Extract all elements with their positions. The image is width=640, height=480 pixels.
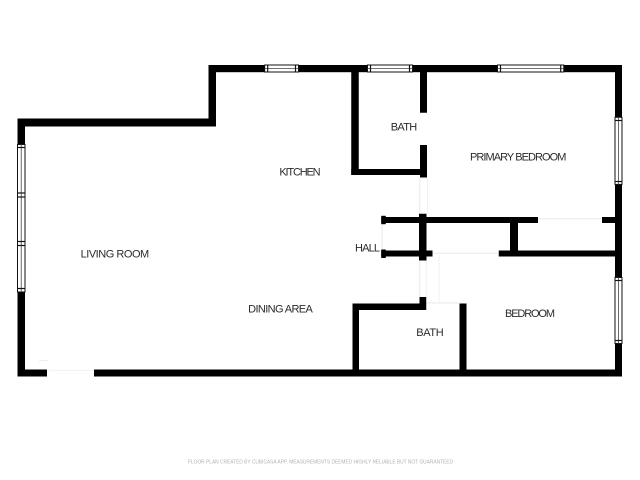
svg-text:BEDROOM: BEDROOM: [505, 308, 555, 320]
svg-text:DINING AREA: DINING AREA: [248, 303, 313, 315]
svg-text:KITCHEN: KITCHEN: [279, 166, 320, 178]
svg-text:HALL: HALL: [355, 243, 380, 255]
svg-text:BATH: BATH: [391, 122, 418, 134]
svg-text:LIVING ROOM: LIVING ROOM: [81, 249, 150, 261]
svg-text:BATH: BATH: [416, 327, 444, 339]
svg-text:FLOOR PLAN CREATED BY CUBICASA: FLOOR PLAN CREATED BY CUBICASA APP. MEAS…: [188, 460, 453, 466]
svg-text:PRIMARY BEDROOM: PRIMARY BEDROOM: [470, 151, 567, 163]
